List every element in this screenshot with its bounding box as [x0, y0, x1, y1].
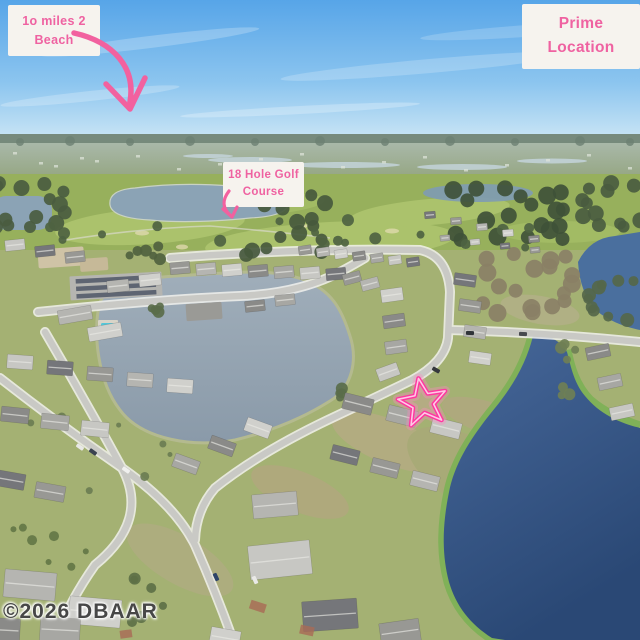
- watermark: ©2026 DBAAR: [3, 600, 158, 624]
- star-marker-icon: [390, 372, 456, 436]
- aerial-photo: 1o miles 2 Beach Prime Location 18 Hole …: [0, 0, 640, 640]
- scene-illustration: [0, 0, 640, 640]
- golf-badge-line1: 18 Hole Golf: [224, 167, 303, 184]
- beach-badge-line2: Beach: [10, 31, 98, 50]
- golf-course-badge: 18 Hole Golf Course: [223, 162, 304, 207]
- beach-badge-line1: 1o miles 2: [10, 12, 98, 31]
- golf-badge-line2: Course: [224, 184, 303, 201]
- beach-distance-badge: 1o miles 2 Beach: [8, 5, 100, 56]
- prime-location-badge: Prime Location: [522, 4, 640, 69]
- prime-badge-line2: Location: [522, 36, 640, 60]
- prime-badge-line1: Prime: [522, 12, 640, 36]
- clubhouse-roof: [185, 302, 222, 321]
